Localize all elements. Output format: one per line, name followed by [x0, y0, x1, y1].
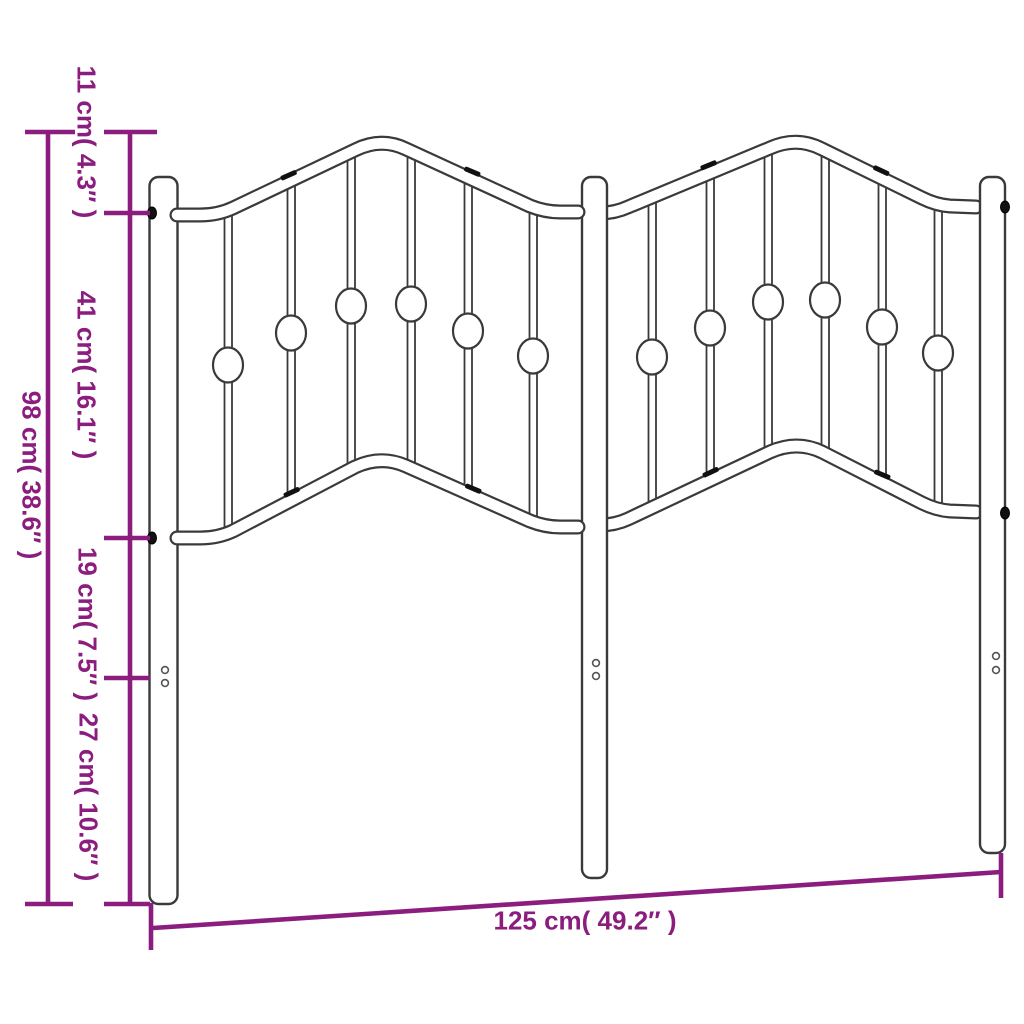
ornament: [518, 339, 548, 374]
ornament: [396, 287, 426, 322]
dimension-label-leg-bottom: 27 cm( 10.6″ ): [73, 713, 104, 882]
dimension-label-overall-width: 125 cm( 49.2″ ): [493, 906, 676, 937]
ornament: [753, 285, 783, 320]
ornament: [276, 316, 306, 351]
hole: [993, 653, 1000, 660]
post-holes: [162, 653, 1000, 687]
top-rail-left-fill: [177, 143, 578, 215]
ornament: [213, 348, 243, 383]
dimension-label-top-section: 11 cm( 4.3″ ): [71, 66, 102, 219]
hole: [162, 667, 169, 674]
ornament: [637, 340, 667, 375]
screw: [1001, 507, 1010, 519]
headboard-drawing: [0, 0, 1024, 1024]
ornament: [810, 283, 840, 318]
middle-post: [582, 177, 607, 878]
ornament: [695, 311, 725, 346]
posts: [150, 177, 1006, 904]
ornament: [336, 289, 366, 324]
hole: [593, 660, 600, 667]
left-panel-rails: [177, 143, 578, 538]
dimension-label-upper-panel: 41 cm( 16.1″ ): [71, 291, 102, 460]
hole: [993, 667, 1000, 674]
bottom-rail-left-fill: [177, 461, 578, 538]
hole: [593, 673, 600, 680]
dimension-label-overall-height: 98 cm( 38.6″ ): [16, 391, 47, 560]
product-dimension-diagram: 98 cm( 38.6″ ) 11 cm( 4.3″ ) 41 cm( 16.1…: [0, 0, 1024, 1024]
ornament: [453, 314, 483, 349]
ornament: [923, 336, 953, 371]
ornament: [867, 310, 897, 345]
dimension-label-gap-below-panel: 19 cm( 7.5″ ): [72, 547, 103, 701]
hole: [162, 680, 169, 687]
screw: [1001, 201, 1010, 213]
